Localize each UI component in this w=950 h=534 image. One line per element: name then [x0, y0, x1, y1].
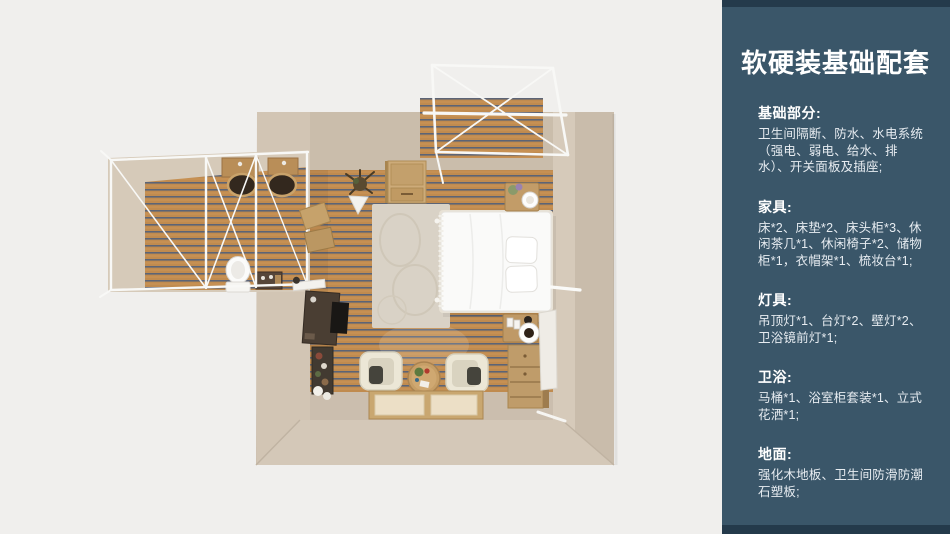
- faucet-icon: [238, 162, 242, 166]
- section-heading: 卫浴:: [758, 368, 924, 387]
- nightstand-bottom: [503, 314, 539, 343]
- tea-table: [408, 362, 440, 394]
- section-bathroom: 卫浴: 马桶*1、浴室柜套装*1、立式花洒*1;: [758, 368, 924, 423]
- door-panel: [539, 310, 557, 390]
- desk-chair: [330, 302, 349, 334]
- chair-cushion: [467, 367, 481, 385]
- section-body: 床*2、床垫*2、床头柜*3、休闲茶几*1、休闲椅子*2、储物柜*1，衣帽架*1…: [758, 220, 924, 270]
- nightstand-top: [505, 183, 539, 211]
- mat: [431, 395, 477, 415]
- floorplan-svg: [0, 0, 722, 534]
- bathroom: [100, 150, 312, 297]
- south-wall: [256, 420, 614, 465]
- faucet-icon: [282, 161, 286, 165]
- section-heading: 灯具:: [758, 291, 924, 310]
- basin-right: [268, 174, 296, 196]
- section-body: 强化木地板、卫生间防滑防潮石塑板;: [758, 467, 924, 500]
- section-flooring: 地面: 强化木地板、卫生间防滑防潮石塑板;: [758, 445, 924, 500]
- pillow: [506, 236, 538, 263]
- section-body: 马桶*1、浴室柜套装*1、立式花洒*1;: [758, 390, 924, 423]
- balcony-deck: [420, 98, 543, 158]
- mat: [375, 395, 424, 415]
- floor-mats: [369, 391, 483, 419]
- section-basics: 基础部分: 卫生间隔断、防水、水电系统（强电、弱电、给水、排水）、开关面板及插座…: [758, 104, 924, 176]
- section-heading: 地面:: [758, 445, 924, 464]
- plant-decor: [415, 368, 424, 377]
- bed: [435, 210, 557, 317]
- armchair-right: [446, 354, 488, 392]
- chair-cushion: [369, 366, 383, 384]
- section-furniture: 家具: 床*2、床垫*2、床头柜*3、休闲茶几*1、休闲椅子*2、储物柜*1，衣…: [758, 198, 924, 270]
- panel-title: 软硬装基础配套: [741, 47, 945, 80]
- pillow: [506, 265, 538, 292]
- section-body: 吊顶灯*1、台灯*2、壁灯*2、卫浴镜前灯*1;: [758, 313, 924, 346]
- spec-panel: 软硬装基础配套 基础部分: 卫生间隔断、防水、水电系统（强电、弱电、给水、排水）…: [722, 0, 950, 534]
- section-body: 卫生间隔断、防水、水电系统（强电、弱电、给水、排水）、开关面板及插座;: [758, 126, 924, 176]
- section-lighting: 灯具: 吊顶灯*1、台灯*2、壁灯*2、卫浴镜前灯*1;: [758, 291, 924, 346]
- decor-shelf: [312, 347, 333, 400]
- flower-decor: [313, 386, 323, 396]
- section-heading: 家具:: [758, 198, 924, 217]
- storage-cabinet: [385, 161, 426, 203]
- floorplan-render: [0, 0, 722, 534]
- presentation-slide: 软硬装基础配套 基础部分: 卫生间隔断、防水、水电系统（强电、弱电、给水、排水）…: [0, 0, 950, 534]
- section-heading: 基础部分:: [758, 104, 924, 123]
- armchair-left: [360, 352, 402, 390]
